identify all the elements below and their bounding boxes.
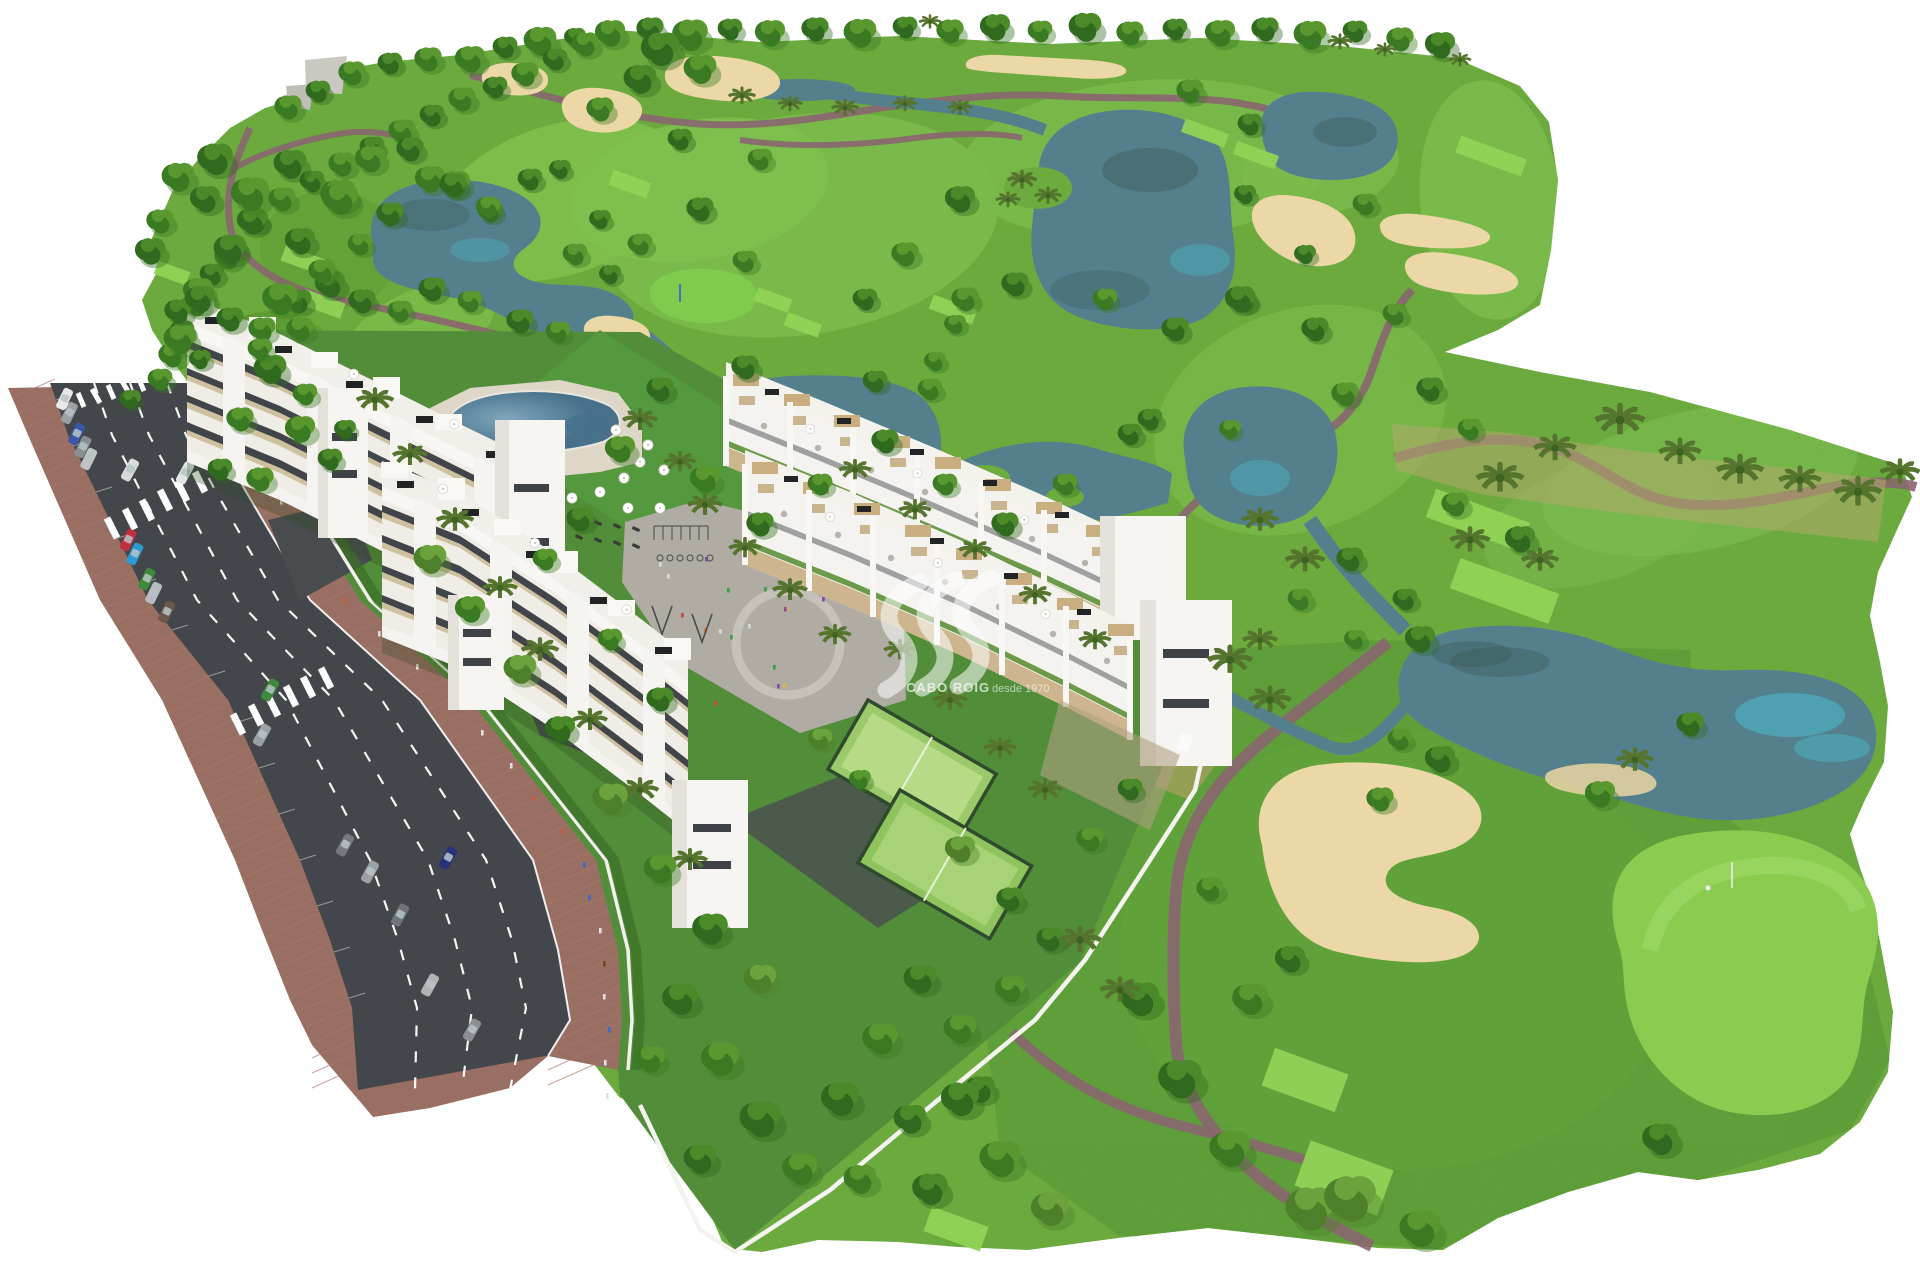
- svg-text:desde 1970: desde 1970: [992, 683, 1050, 695]
- svg-text:CABO ROIG: CABO ROIG: [906, 680, 990, 695]
